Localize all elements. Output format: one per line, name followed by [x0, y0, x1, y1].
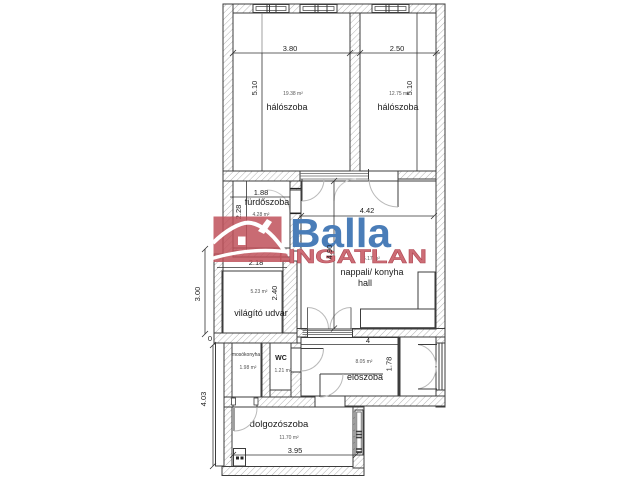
svg-text:mosókonyha: mosókonyha	[232, 352, 261, 358]
svg-text:4: 4	[366, 336, 370, 345]
svg-text:hálószoba: hálószoba	[266, 102, 307, 112]
svg-text:nappali/ konyha: nappali/ konyha	[340, 267, 403, 277]
svg-text:fürdőszoba: fürdőszoba	[245, 197, 290, 207]
svg-text:1.21 m²: 1.21 m²	[275, 368, 292, 374]
svg-text:hall: hall	[358, 278, 372, 288]
svg-text:világító udvar: világító udvar	[234, 308, 288, 318]
svg-text:WC: WC	[275, 355, 287, 362]
svg-text:5.10: 5.10	[250, 81, 259, 96]
svg-text:1.98 m²: 1.98 m²	[240, 365, 257, 371]
svg-text:dolgozószoba: dolgozószoba	[250, 419, 309, 430]
svg-text:8.05 m²: 8.05 m²	[356, 359, 373, 365]
svg-text:3.00: 3.00	[193, 287, 202, 302]
svg-text:11.70 m²: 11.70 m²	[279, 435, 299, 441]
svg-text:3.80: 3.80	[283, 44, 298, 53]
svg-text:1.78: 1.78	[385, 357, 394, 372]
svg-text:19.38 m²: 19.38 m²	[283, 91, 303, 97]
svg-text:INGATLAN: INGATLAN	[288, 246, 427, 268]
svg-text:hálószoba: hálószoba	[377, 102, 418, 112]
svg-text:4.03: 4.03	[199, 392, 208, 407]
svg-text:1.88: 1.88	[254, 188, 269, 197]
svg-text:3.95: 3.95	[288, 446, 303, 455]
svg-text:4.90: 4.90	[325, 245, 334, 260]
svg-text:2.40: 2.40	[270, 286, 279, 301]
svg-text:5.10: 5.10	[405, 81, 414, 96]
svg-text:2.50: 2.50	[390, 44, 405, 53]
svg-text:5.23 m²: 5.23 m²	[251, 289, 268, 295]
svg-text:0: 0	[208, 334, 212, 343]
